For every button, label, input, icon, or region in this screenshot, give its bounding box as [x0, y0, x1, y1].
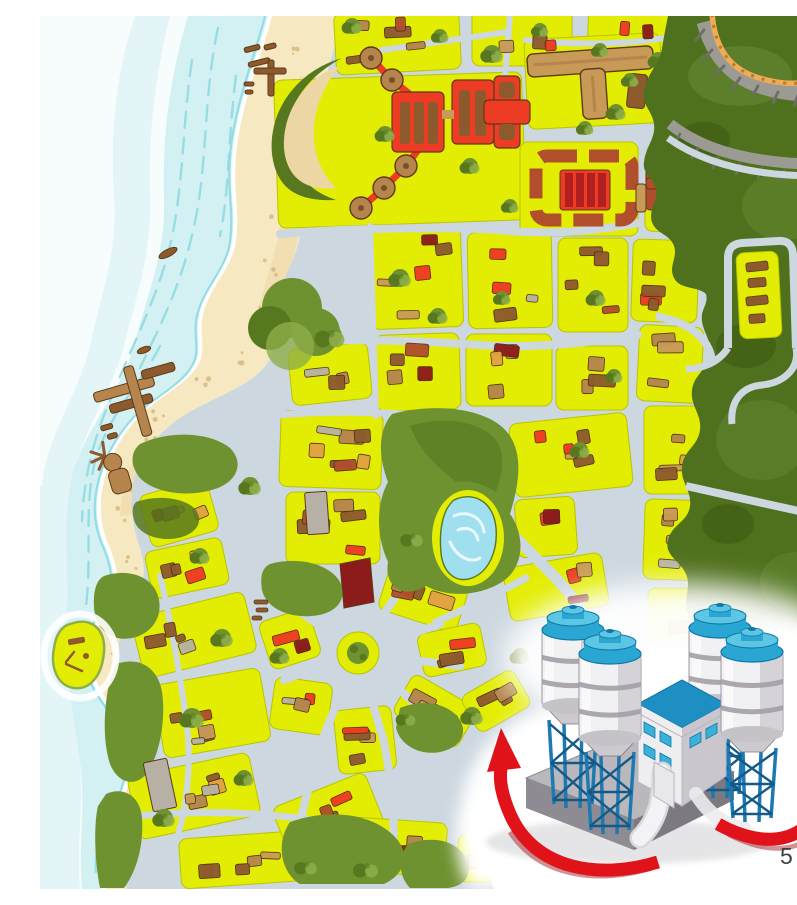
building [658, 342, 684, 353]
building [526, 294, 538, 302]
building [198, 863, 220, 878]
sand-speckle [237, 361, 241, 365]
building [490, 249, 506, 260]
page-number: 5 [780, 843, 793, 869]
campus-hall [392, 92, 444, 152]
building [588, 356, 605, 371]
building [387, 370, 403, 385]
sand-speckle [203, 383, 208, 388]
building [345, 545, 365, 556]
sand-speckle [126, 555, 130, 559]
building [334, 499, 354, 512]
building [170, 563, 181, 575]
building [642, 285, 666, 297]
building [565, 280, 578, 290]
sand-speckle [274, 273, 278, 277]
sand-speckle [144, 438, 148, 442]
sand-speckle [125, 560, 128, 563]
building [663, 508, 677, 521]
building [414, 265, 431, 280]
building [671, 434, 685, 443]
building [576, 562, 592, 577]
sand-speckle [295, 47, 300, 52]
gray-building [305, 491, 330, 534]
building [356, 454, 370, 470]
building [642, 261, 655, 276]
building [390, 354, 404, 366]
building [655, 467, 677, 480]
building [493, 307, 517, 322]
building [543, 509, 560, 523]
building [342, 727, 368, 734]
building [192, 738, 205, 745]
sand-speckle [241, 351, 244, 354]
building [164, 622, 177, 638]
sand-speckle [123, 519, 127, 523]
building [642, 24, 653, 39]
sand-speckle [271, 267, 276, 272]
sand-speckle [292, 53, 294, 55]
building [422, 235, 438, 246]
building [488, 384, 505, 399]
building [309, 443, 325, 458]
sand-speckle [263, 259, 267, 263]
sand-speckle [206, 376, 211, 381]
building [235, 863, 250, 875]
illustrated-city-map-page: 5 [40, 16, 797, 889]
building [354, 429, 371, 443]
building [418, 367, 433, 381]
market-hall [340, 558, 374, 608]
building [499, 40, 514, 53]
building [397, 310, 419, 319]
building [185, 793, 196, 804]
building [261, 852, 281, 859]
sand-speckle [153, 417, 158, 422]
building [620, 21, 630, 36]
building [405, 343, 429, 357]
roundabout [328, 623, 388, 683]
sand-speckle [269, 214, 274, 219]
building [534, 430, 546, 443]
building [602, 305, 619, 313]
city-block [279, 410, 384, 490]
building [435, 242, 453, 255]
building [328, 375, 344, 390]
building [648, 298, 659, 311]
sand-speckle [151, 409, 155, 413]
sand-speckle [135, 567, 138, 570]
building [594, 252, 609, 266]
sand-speckle [115, 506, 120, 511]
sand-speckle [195, 377, 199, 381]
sand-speckle [162, 414, 165, 417]
building [491, 351, 504, 366]
building [334, 459, 357, 471]
building [545, 40, 556, 51]
building [201, 784, 219, 797]
building [395, 17, 405, 31]
